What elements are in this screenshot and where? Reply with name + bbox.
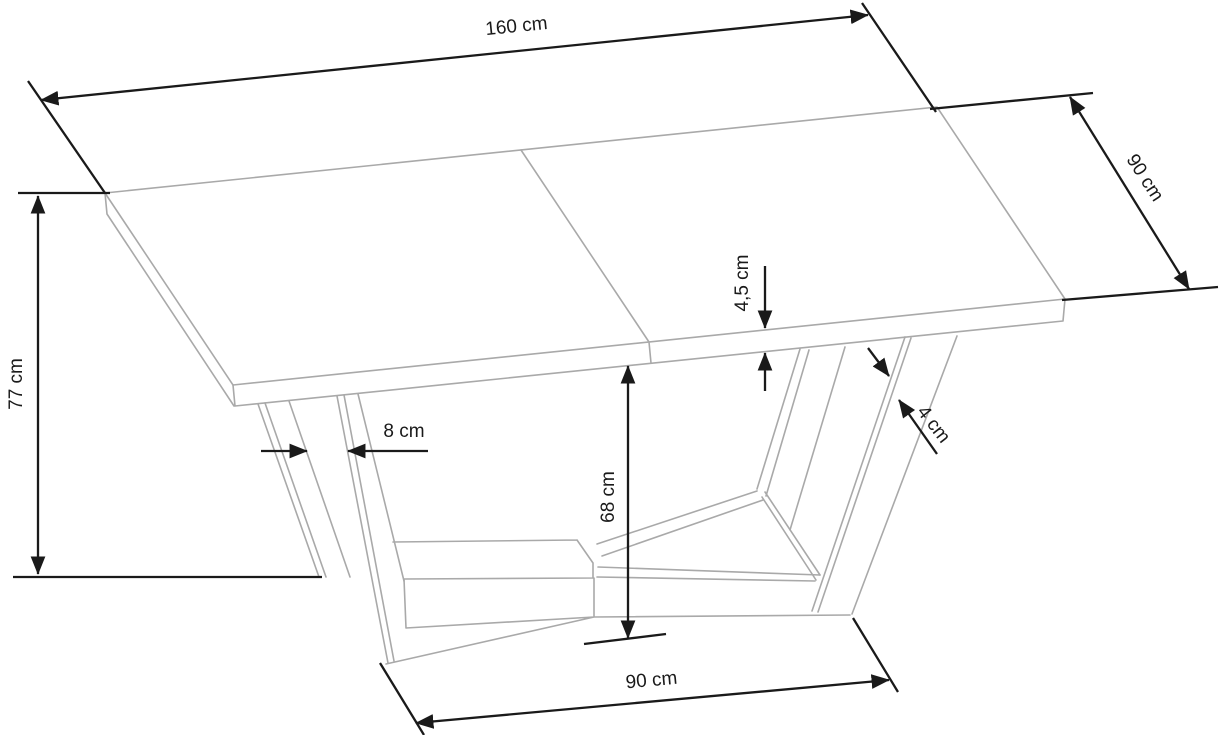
right-leg-frame (757, 336, 957, 614)
dimension-tabletop-depth-label: 90 cm (1122, 151, 1168, 206)
tabletop-thickness-edges (105, 193, 1065, 406)
dimension-table-height-label: 77 cm (6, 358, 27, 410)
dimension-table-height: 77 cm (6, 193, 322, 577)
dimension-underside-clearance: 68 cm (584, 366, 666, 644)
dimension-underside-clearance-floor-reference (584, 634, 666, 644)
dimension-tabletop-length-label: 160 cm (484, 13, 548, 40)
table-technical-drawing: 160 cm 90 cm 77 cm 4,5 cm 4 cm (0, 0, 1219, 735)
dimension-underside-clearance-label: 68 cm (598, 471, 619, 523)
dimension-leg-spacing-label: 8 cm (383, 421, 424, 442)
dimension-tabletop-length-line (41, 15, 868, 100)
dimension-tabletop-depth-extension-lines (930, 93, 1218, 300)
dimension-leg-thickness: 4 cm (868, 348, 954, 454)
dimension-tabletop-length-extension-lines (28, 3, 936, 193)
dimension-base-length: 90 cm (380, 618, 898, 735)
dimension-tabletop-length: 160 cm (28, 3, 936, 193)
dimension-leg-thickness-label: 4 cm (912, 402, 954, 447)
dimension-leg-thickness-arrow-upper (868, 348, 889, 376)
technical-drawing-page: 160 cm 90 cm 77 cm 4,5 cm 4 cm (0, 0, 1219, 735)
tabletop-split-line (521, 150, 651, 363)
dimension-tabletop-depth: 90 cm (930, 93, 1218, 300)
dimension-base-length-label: 90 cm (625, 668, 678, 694)
left-leg-frame (258, 394, 404, 663)
dimension-tabletop-thickness: 4,5 cm (732, 254, 765, 391)
dimension-table-height-extension-lines (13, 193, 322, 577)
dimension-tabletop-depth-line (1070, 97, 1189, 289)
table-outline (105, 107, 1065, 664)
dimension-tabletop-thickness-label: 4,5 cm (732, 254, 753, 311)
